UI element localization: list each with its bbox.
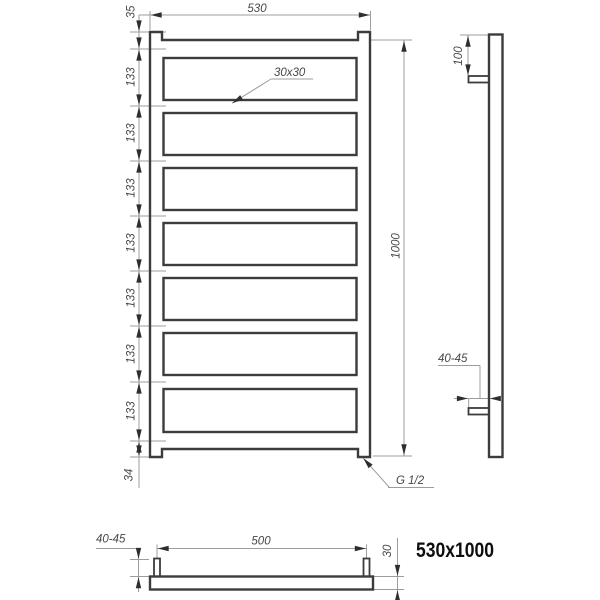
bottom-view-geometry — [150, 559, 373, 590]
wall-bracket-bottom — [469, 408, 490, 415]
model-size-title: 530x1000 — [416, 539, 494, 562]
collector-profile — [489, 35, 503, 458]
technical-drawing: 530 35 133 133 133 133 133 133 133 34 10… — [0, 0, 600, 600]
mount-stud-left — [154, 559, 160, 577]
frame-opening — [164, 58, 357, 100]
side-view-dimension-lines — [438, 35, 503, 407]
bottom-view-arrows — [139, 549, 398, 600]
dim-tube-depth: 30 — [382, 544, 394, 557]
dim-wall-clearance-side: 40-45 — [438, 353, 468, 365]
frame-opening — [164, 168, 357, 210]
dim-bottom-offset: 34 — [124, 469, 136, 482]
bottom-view-dimension-lines — [96, 538, 404, 600]
tube-profile-callout: 30x30 — [274, 67, 306, 79]
dim-width: 530 — [247, 3, 267, 15]
front-view: 530 35 133 133 133 133 133 133 133 34 10… — [124, 3, 435, 488]
wall-bracket-top — [469, 76, 490, 83]
dim-rung-spacing: 133 — [126, 233, 138, 253]
thread-callout: G 1/2 — [396, 475, 425, 487]
frame-opening — [164, 333, 357, 375]
dim-rung-spacing: 133 — [126, 288, 138, 308]
side-view-arrows — [457, 36, 502, 399]
frame-opening — [164, 223, 357, 265]
dim-rung-spacing: 133 — [126, 123, 138, 143]
side-view: 100 40-45 — [438, 35, 503, 458]
frame-opening — [164, 389, 357, 432]
dim-rung-spacing: 133 — [126, 67, 138, 87]
front-view-geometry — [150, 32, 370, 457]
dim-rung-spacing: 133 — [126, 344, 138, 364]
dim-wall-clearance-bottom: 40-45 — [96, 534, 126, 546]
drawing-svg: 530 35 133 133 133 133 133 133 133 34 10… — [0, 0, 600, 600]
frame-opening — [164, 113, 357, 155]
frame-outline — [150, 32, 370, 457]
frame-opening — [164, 278, 357, 320]
dim-rung-spacing: 133 — [126, 401, 138, 421]
mount-stud-right — [364, 559, 370, 577]
bottom-view: 500 40-45 30 — [96, 534, 404, 600]
side-view-geometry — [469, 35, 503, 458]
dim-bracket-offset: 100 — [453, 46, 465, 66]
dim-height: 1000 — [391, 233, 403, 259]
dim-bracket-spacing: 500 — [251, 536, 271, 548]
bottom-tube-profile — [150, 577, 373, 590]
dim-rung-spacing: 133 — [126, 178, 138, 198]
dim-top-offset: 35 — [126, 5, 138, 18]
